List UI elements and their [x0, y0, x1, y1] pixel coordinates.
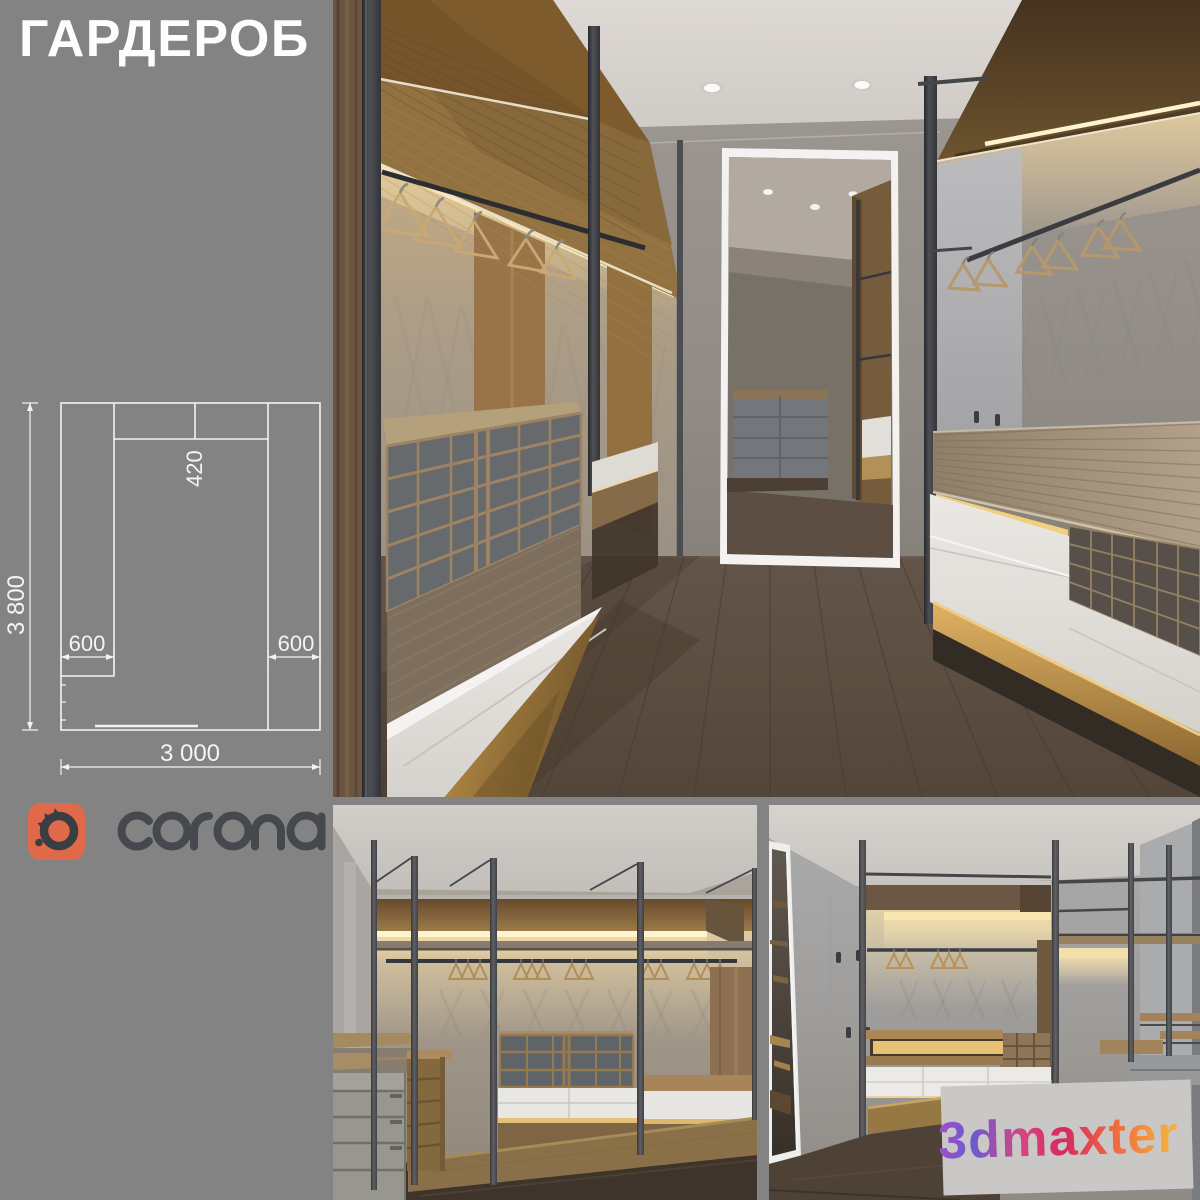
- svg-text:3 800: 3 800: [3, 575, 30, 635]
- svg-text:600: 600: [278, 631, 315, 656]
- svg-text:3 000: 3 000: [160, 740, 220, 767]
- svg-text:600: 600: [69, 631, 106, 656]
- svg-text:420: 420: [182, 450, 207, 487]
